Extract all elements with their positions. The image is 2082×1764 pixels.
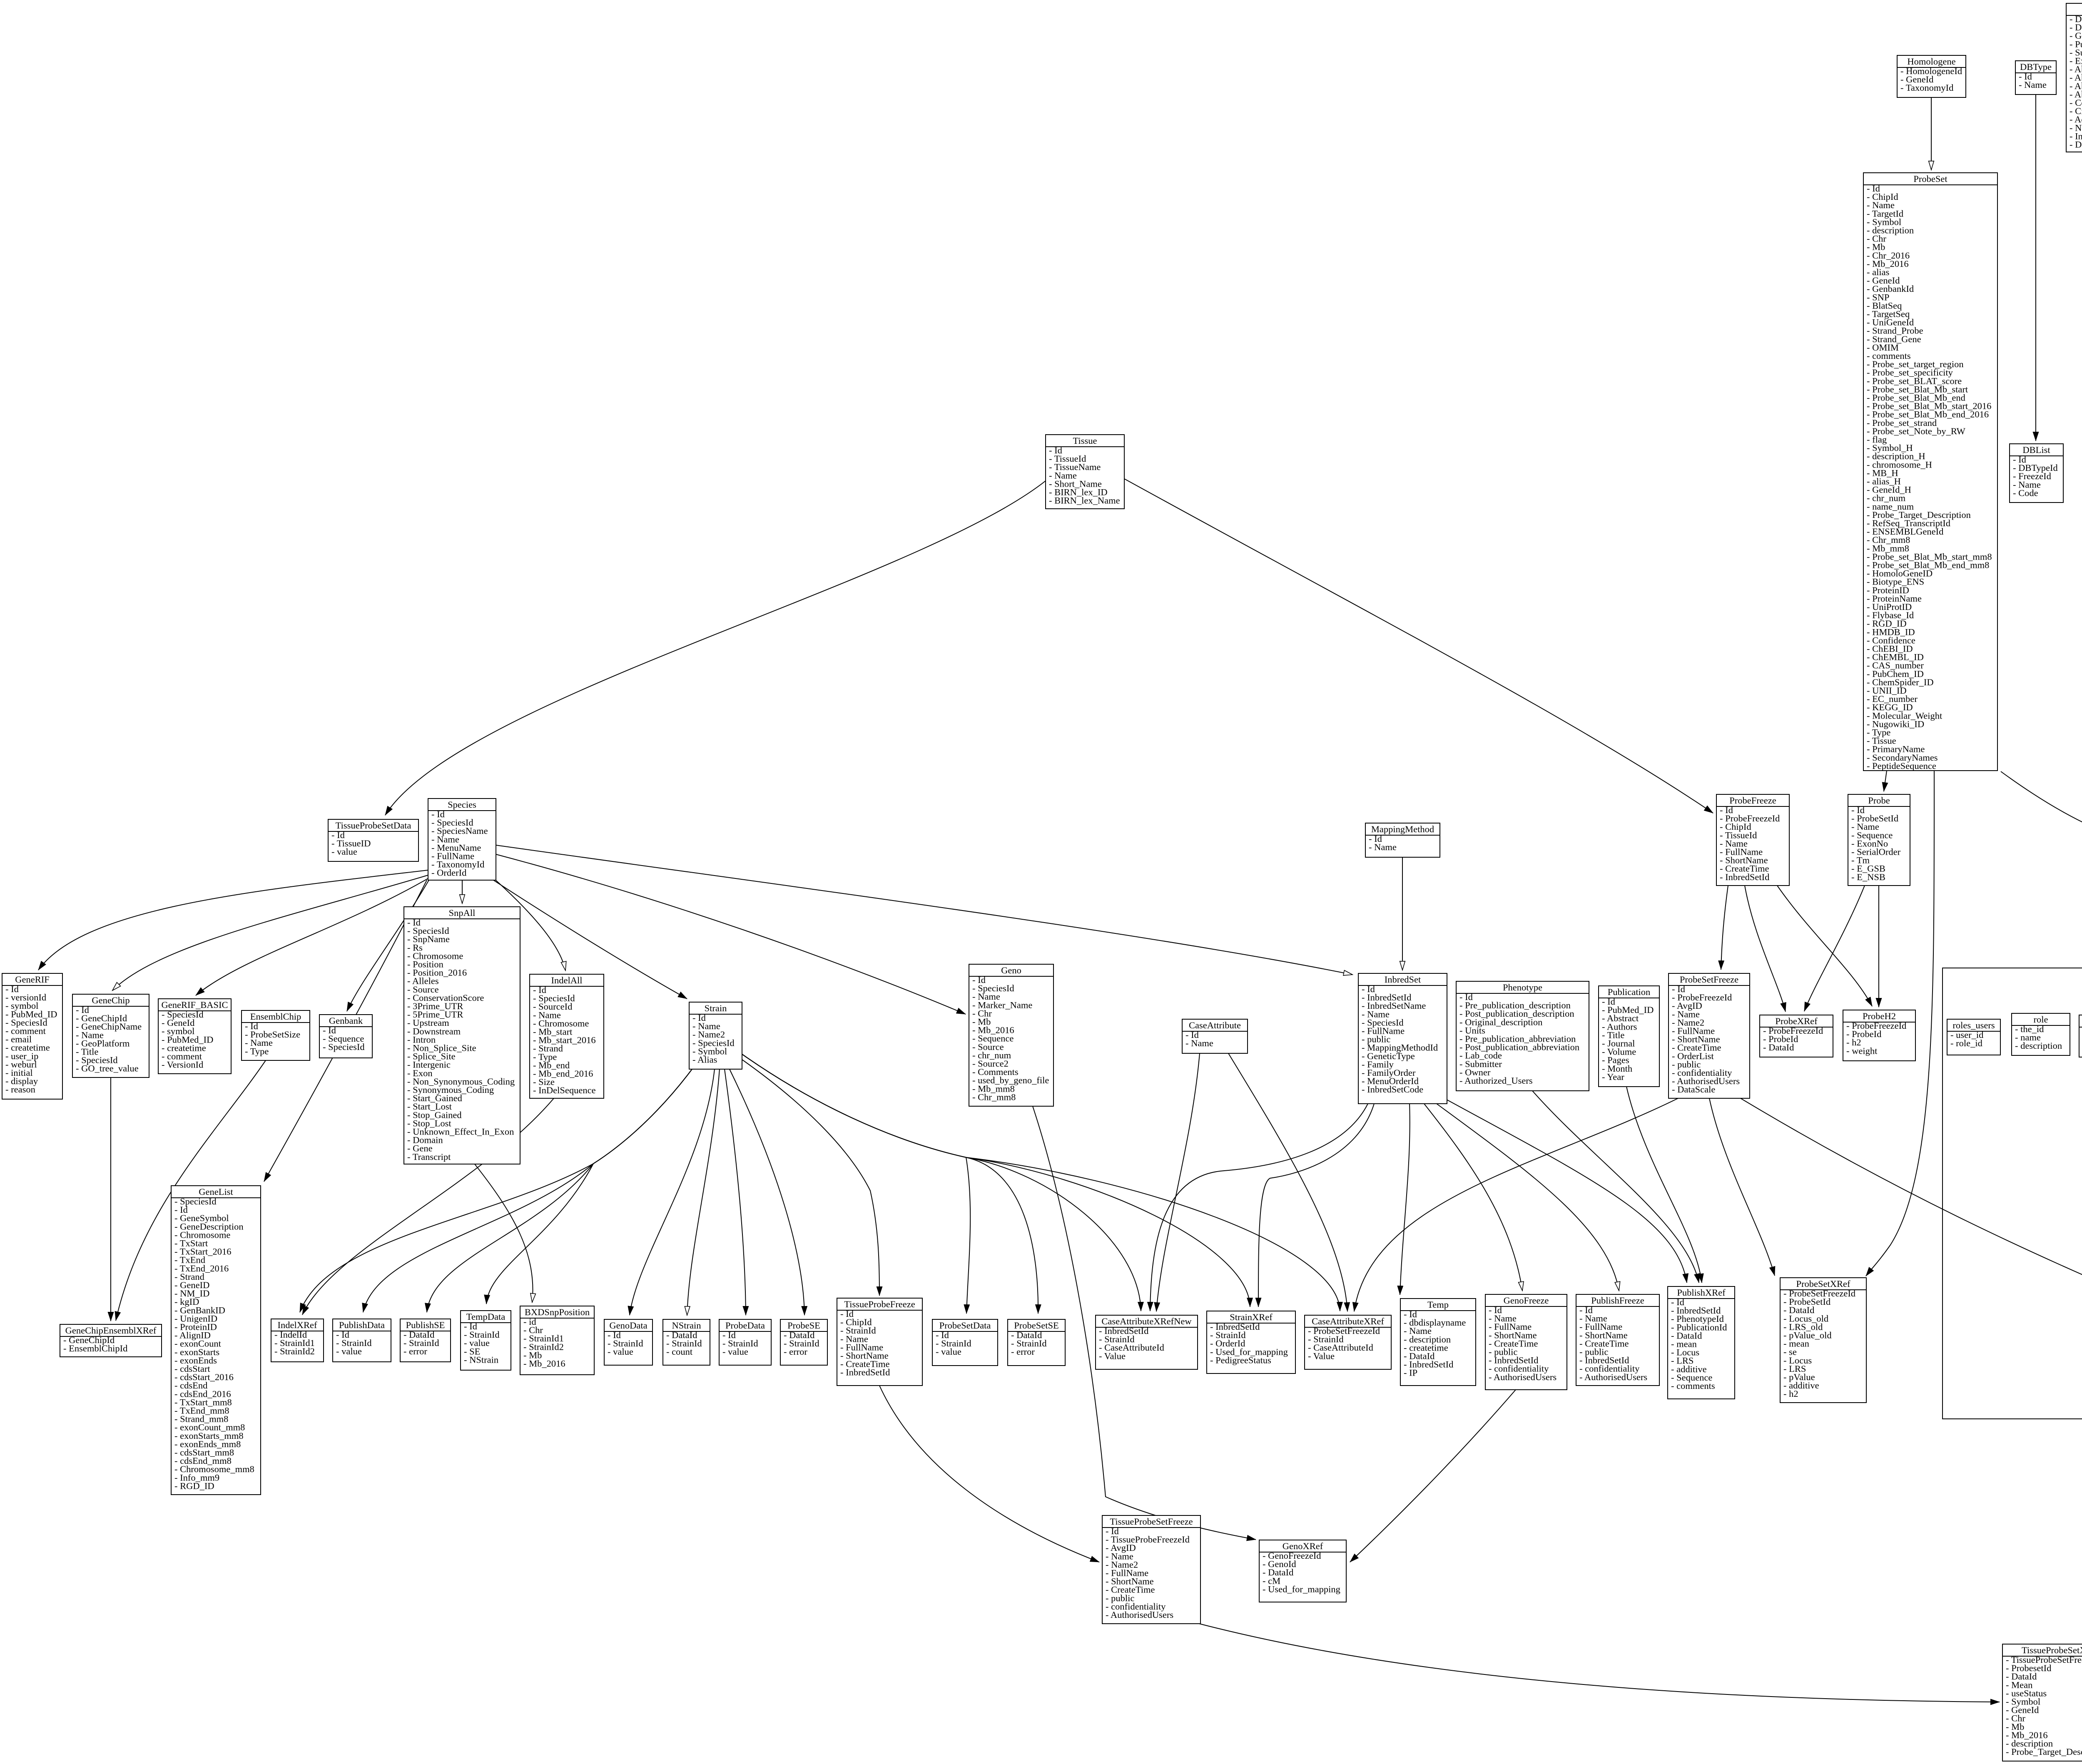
svg-text:- h2: - h2 (1783, 1388, 1798, 1399)
svg-text:- Transcript: - Transcript (407, 1152, 451, 1162)
svg-text:CaseAttributeXRefNew: CaseAttributeXRefNew (1101, 1316, 1192, 1326)
svg-text:- InbredSetId: - InbredSetId (1720, 872, 1769, 882)
svg-text:- PedigreeStatus: - PedigreeStatus (1210, 1355, 1271, 1365)
svg-text:Species: Species (448, 799, 476, 810)
svg-text:- Value: - Value (1099, 1351, 1126, 1361)
svg-text:- OrderId: - OrderId (431, 868, 466, 878)
svg-text:- AuthorisedUsers: - AuthorisedUsers (1106, 1610, 1173, 1620)
svg-text:Geno: Geno (1001, 965, 1021, 975)
svg-text:Homologene: Homologene (1907, 56, 1955, 67)
svg-text:ProbeH2: ProbeH2 (1863, 1011, 1896, 1021)
svg-text:- value: - value (336, 1346, 362, 1356)
svg-text:- Used_for_mapping: - Used_for_mapping (1263, 1584, 1340, 1594)
svg-text:- Value: - Value (1308, 1351, 1335, 1361)
svg-text:GeneRIF: GeneRIF (15, 974, 50, 985)
svg-text:role: role (2034, 1014, 2048, 1025)
svg-text:TempData: TempData (466, 1311, 505, 1322)
svg-text:- EnsemblChipId: - EnsemblChipId (63, 1343, 127, 1353)
svg-text:TissueProbeSetXRef: TissueProbeSetXRef (2022, 1645, 2082, 1655)
svg-text:GenoXRef: GenoXRef (1283, 1541, 1323, 1551)
svg-text:MappingMethod: MappingMethod (1371, 824, 1434, 834)
svg-text:- value: - value (608, 1346, 633, 1357)
svg-text:- weight: - weight (1846, 1045, 1878, 1056)
svg-text:GenoFreeze: GenoFreeze (1504, 1295, 1549, 1306)
svg-text:- Name: - Name (1369, 842, 1397, 852)
svg-text:- reason: - reason (5, 1084, 35, 1095)
svg-text:- GO_tree_value: - GO_tree_value (76, 1063, 139, 1074)
svg-text:Probe: Probe (1868, 795, 1890, 806)
svg-text:ProbeSetFreeze: ProbeSetFreeze (1680, 974, 1738, 985)
svg-text:Phenotype: Phenotype (1503, 982, 1542, 993)
svg-text:- Type: - Type (245, 1046, 269, 1056)
svg-text:GeneList: GeneList (199, 1187, 233, 1197)
svg-text:- count: - count (666, 1346, 693, 1357)
svg-text:TissueProbeSetFreeze: TissueProbeSetFreeze (1110, 1516, 1193, 1527)
svg-text:CaseAttributeXRef: CaseAttributeXRef (1312, 1316, 1384, 1326)
svg-text:- VersionId: - VersionId (162, 1060, 203, 1070)
svg-text:CaseAttribute: CaseAttribute (1189, 1020, 1241, 1030)
svg-text:- AuthorisedUsers: - AuthorisedUsers (1489, 1372, 1557, 1382)
svg-text:- InbredSetId: - InbredSetId (840, 1367, 890, 1378)
svg-text:- error: - error (1011, 1346, 1035, 1357)
svg-text:- DataId: - DataId (1763, 1042, 1794, 1052)
svg-text:- SpeciesId: - SpeciesId (323, 1042, 365, 1052)
svg-text:Strain: Strain (705, 1003, 727, 1013)
svg-text:StrainXRef: StrainXRef (1230, 1312, 1273, 1322)
svg-text:- E_NSB: - E_NSB (1851, 872, 1885, 882)
svg-text:- PeptideSequence: - PeptideSequence (1867, 761, 1936, 771)
svg-text:DBList: DBList (2022, 445, 2050, 455)
svg-text:BXDSnpPosition: BXDSnpPosition (525, 1307, 590, 1317)
svg-text:ProbeData: ProbeData (725, 1320, 765, 1331)
svg-text:- DataScale: - DataScale (1672, 1084, 1715, 1095)
svg-text:- Year: - Year (1602, 1072, 1624, 1082)
svg-text:TissueProbeFreeze: TissueProbeFreeze (844, 1299, 915, 1309)
svg-text:ProbeSetSE: ProbeSetSE (1014, 1320, 1059, 1331)
svg-text:Temp: Temp (1427, 1299, 1449, 1310)
svg-text:roles_users: roles_users (1952, 1020, 1995, 1030)
svg-text:InbredSet: InbredSet (1385, 974, 1421, 985)
svg-text:GeneChip: GeneChip (92, 995, 130, 1005)
svg-text:- TaxonomyId: - TaxonomyId (1900, 82, 1953, 93)
svg-text:IndelAll: IndelAll (551, 975, 583, 985)
svg-text:- Name: - Name (1185, 1038, 1213, 1048)
svg-text:PublishSE: PublishSE (406, 1320, 445, 1330)
svg-text:PublishFreeze: PublishFreeze (1591, 1295, 1644, 1306)
svg-text:- error: - error (784, 1346, 807, 1357)
svg-text:- NStrain: - NStrain (464, 1354, 498, 1365)
svg-text:- role_id: - role_id (1950, 1038, 1982, 1048)
svg-text:- error: - error (403, 1346, 427, 1356)
svg-text:TissueProbeSetData: TissueProbeSetData (336, 820, 411, 831)
svg-text:SnpAll: SnpAll (449, 908, 476, 918)
svg-text:- Authorized_Users: - Authorized_Users (1459, 1075, 1533, 1086)
svg-text:- InDelSequence: - InDelSequence (533, 1085, 596, 1095)
svg-text:PublishData: PublishData (339, 1320, 385, 1330)
svg-text:Tissue: Tissue (1073, 435, 1097, 446)
svg-text:- value: - value (331, 846, 357, 857)
svg-text:- Mb_2016: - Mb_2016 (523, 1358, 565, 1369)
svg-text:- Code: - Code (2013, 488, 2038, 498)
svg-text:ProbeSet: ProbeSet (1913, 174, 1948, 184)
svg-text:- AuthorisedUsers: - AuthorisedUsers (1579, 1372, 1647, 1382)
svg-text:- comments: - comments (1671, 1381, 1715, 1391)
svg-text:- DatasetStatusId: - DatasetStatusId (2070, 139, 2082, 150)
svg-text:ProbeXRef: ProbeXRef (1775, 1016, 1818, 1026)
svg-text:Genbank: Genbank (329, 1015, 363, 1026)
svg-text:- Chr_mm8: - Chr_mm8 (972, 1092, 1016, 1102)
svg-text:- value: - value (936, 1346, 961, 1357)
svg-text:- InbredSetCode: - InbredSetCode (1362, 1084, 1423, 1095)
svg-text:NStrain: NStrain (672, 1320, 701, 1331)
svg-text:Publication: Publication (1608, 987, 1651, 997)
svg-text:- StrainId2: - StrainId2 (274, 1346, 315, 1356)
svg-text:ProbeSE: ProbeSE (787, 1320, 820, 1331)
svg-text:DBType: DBType (2020, 62, 2052, 72)
svg-text:IndelXRef: IndelXRef (278, 1320, 317, 1330)
svg-text:- description: - description (2015, 1040, 2062, 1051)
svg-text:- Probe_Target_Description: - Probe_Target_Description (2006, 1747, 2082, 1757)
svg-text:GeneRIF_BASIC: GeneRIF_BASIC (161, 1000, 228, 1010)
svg-text:- RGD_ID: - RGD_ID (174, 1480, 214, 1491)
svg-text:- value: - value (722, 1346, 748, 1357)
svg-text:- Alias: - Alias (692, 1055, 717, 1065)
svg-text:GeneChipEnsemblXRef: GeneChipEnsemblXRef (65, 1325, 157, 1336)
svg-text:- Name: - Name (2019, 80, 2047, 90)
svg-text:EnsemblChip: EnsemblChip (250, 1011, 301, 1022)
svg-text:- IP: - IP (1404, 1368, 1417, 1378)
svg-text:ProbeFreeze: ProbeFreeze (1729, 795, 1776, 806)
svg-text:ProbeSetXRef: ProbeSetXRef (1796, 1279, 1850, 1289)
svg-text:- BIRN_lex_Name: - BIRN_lex_Name (1049, 495, 1120, 506)
svg-text:ProbeSetData: ProbeSetData (939, 1320, 991, 1331)
svg-text:GenoData: GenoData (609, 1320, 647, 1331)
svg-text:PublishXRef: PublishXRef (1677, 1287, 1726, 1298)
